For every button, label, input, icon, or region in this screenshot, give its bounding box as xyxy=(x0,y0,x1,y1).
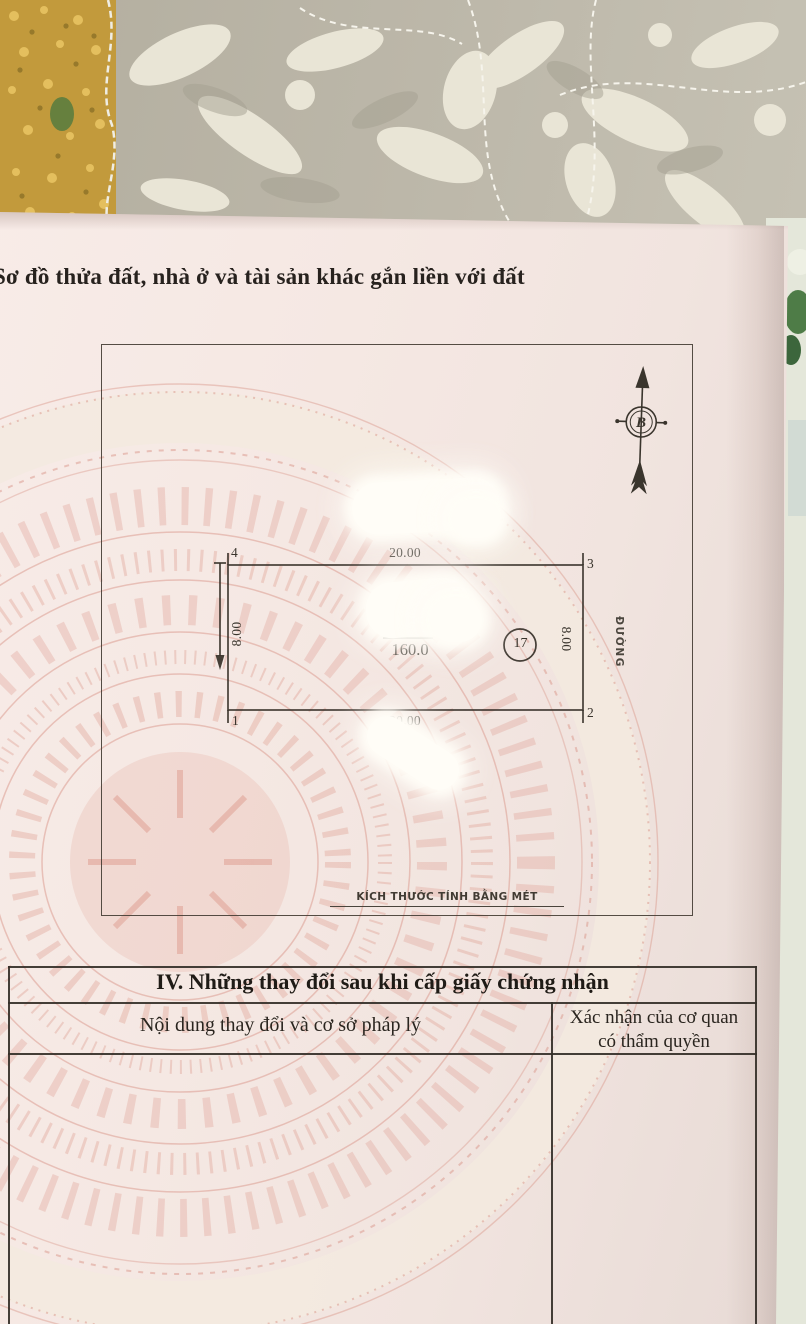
column-header-content: Nội dung thay đổi và cơ sở pháp lý xyxy=(10,1014,551,1037)
redaction-mark-middle-lobe xyxy=(430,598,482,642)
section-title: Sơ đồ thửa đất, nhà ở và tài sản khác gắ… xyxy=(0,264,613,290)
right-edge-dimension: 8.00 xyxy=(558,618,574,660)
parcel-area-value: 160.0 xyxy=(373,640,447,660)
redaction-mark-top-lobe xyxy=(452,500,500,538)
road-label: ĐƯỜNG xyxy=(613,611,625,673)
corner-label-2: 2 xyxy=(587,705,594,721)
table-top-border xyxy=(8,966,757,968)
yellow-fabric-patch xyxy=(0,0,116,233)
compass-north-label: B xyxy=(633,415,649,432)
photo-of-land-certificate: Sơ đồ thửa đất, nhà ở và tài sản khác gắ… xyxy=(0,0,806,1324)
table-title-divider xyxy=(8,1002,757,1004)
column-header-confirmation-line2: có thẩm quyền xyxy=(553,1030,755,1054)
column-header-confirmation: Xác nhận của cơ quan có thẩm quyền xyxy=(553,1006,755,1054)
corner-label-4: 4 xyxy=(231,545,238,561)
corner-label-3: 3 xyxy=(587,556,594,572)
changes-table-title: IV. Những thay đổi sau khi cấp giấy chứn… xyxy=(8,969,757,995)
parcel-number-badge: 17 xyxy=(508,636,533,652)
green-leaf-motif xyxy=(50,97,74,131)
column-header-confirmation-line1: Xác nhận của cơ quan xyxy=(553,1006,755,1030)
top-edge-dimension: 20.00 xyxy=(365,545,445,561)
scale-note: KÍCH THƯỚC TÍNH BẰNG MÉT xyxy=(330,891,564,907)
left-edge-dimension: 8.00 xyxy=(229,613,245,655)
table-right-border xyxy=(755,966,757,1324)
corner-label-1: 1 xyxy=(232,713,239,729)
